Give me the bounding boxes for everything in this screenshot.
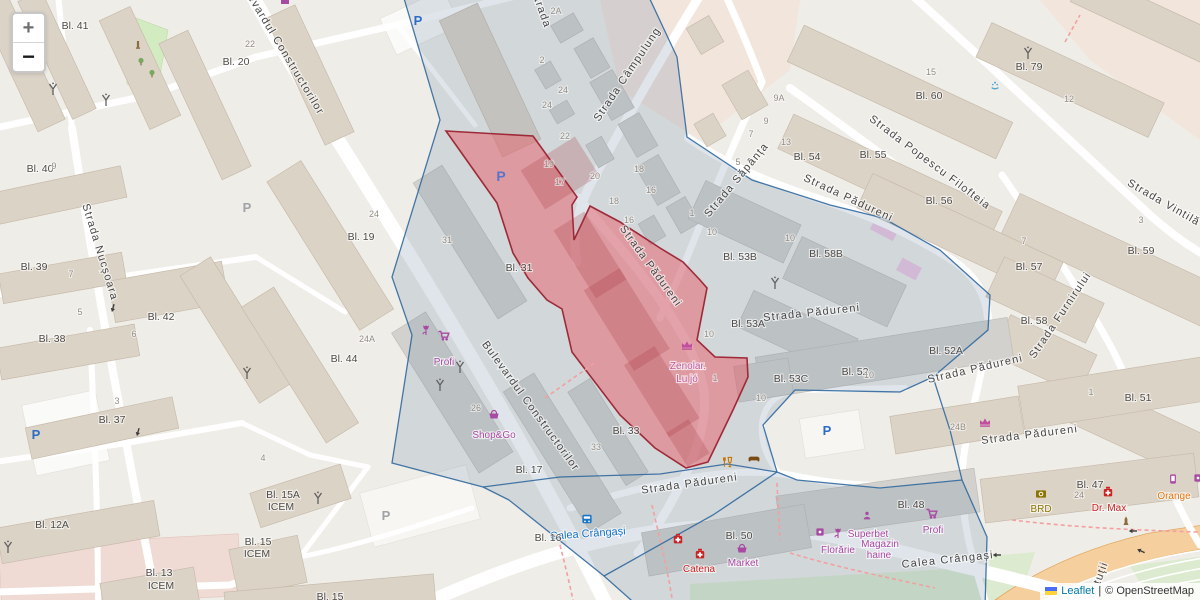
block-label: Bl. 15 [317, 591, 344, 600]
housenumber: 5 [77, 307, 82, 317]
block-label: Bl. 38 [39, 333, 66, 345]
housenumber: 24 [558, 85, 568, 95]
block-label: Bl. 16 [535, 532, 562, 544]
housenumber: 16 [624, 215, 634, 225]
housenumber: 2 [539, 55, 544, 65]
ukraine-flag-icon [1045, 587, 1057, 595]
housenumber: 10 [756, 393, 766, 403]
block-label: Bl. 42 [148, 311, 175, 323]
block-label: Bl. 58B [809, 248, 843, 260]
poi-label-brd: BRD [1030, 504, 1051, 515]
block-label: Bl. 56 [926, 195, 953, 207]
block-label: Bl. 52A [929, 345, 963, 357]
housenumber: 31 [442, 235, 452, 245]
housenumber: 17 [555, 177, 565, 187]
block-label: Bl. 33 [613, 425, 640, 437]
housenumber: 1 [689, 208, 694, 218]
parking-icon: P [243, 200, 252, 215]
poi-label-profi: Profi [923, 525, 944, 536]
parking-icon: P [823, 423, 832, 438]
housenumber: 4 [260, 453, 265, 463]
housenumber: 9A [773, 93, 784, 103]
parking-icon: P [32, 427, 41, 442]
poi-label-catena: Catena [683, 564, 716, 575]
housenumber: 10 [785, 233, 795, 243]
housenumber: 7 [68, 269, 73, 279]
block-label: Bl. 58 [1021, 315, 1048, 327]
block-label: Bl. 79 [1016, 61, 1043, 73]
poi-label-market: Market [728, 558, 759, 569]
block-label: Bl. 57 [1016, 261, 1043, 273]
attribution-separator: | [1098, 585, 1101, 597]
map-container: P P P P P P Bulevardul Constructorilor B… [0, 0, 1200, 600]
housenumber: 3 [1138, 215, 1143, 225]
block-label: Bl. 39 [21, 261, 48, 273]
housenumber: 15 [926, 67, 936, 77]
poi-label-shopgo: Shop&Go [472, 430, 516, 441]
housenumber: 5 [735, 157, 740, 167]
housenumber: 18 [609, 196, 619, 206]
poi-label-zenolar: Lu jó [676, 374, 698, 385]
housenumber: 9 [51, 161, 56, 171]
osm-copyright-link[interactable]: © OpenStreetMap [1105, 585, 1194, 597]
block-label: Bl. 48 [898, 499, 925, 511]
poi-label-haine: haine [867, 550, 892, 561]
housenumber: 9 [763, 116, 768, 126]
block-label: Bl. 50 [726, 530, 753, 542]
block-label: Bl. 37 [99, 414, 126, 426]
block-label: Bl. 44 [331, 353, 358, 365]
housenumber: 3 [114, 396, 119, 406]
block-label: Bl. 31 [506, 262, 533, 274]
shop-icon [1194, 474, 1200, 481]
block-label: Bl. 15 [245, 536, 272, 548]
housenumber: 33 [591, 442, 601, 452]
block-label: Bl. 40 [27, 163, 54, 175]
housenumber: 13 [781, 137, 791, 147]
housenumber: 16 [646, 185, 656, 195]
block-label: Bl. 17 [516, 464, 543, 476]
housenumber: 1 [712, 373, 717, 383]
housenumber: 7 [748, 129, 753, 139]
housenumber: 24 [542, 100, 552, 110]
housenumber: 26 [471, 403, 481, 413]
parking-icon: P [414, 13, 423, 28]
housenumber: 1 [1088, 387, 1093, 397]
housenumber: 22 [560, 131, 570, 141]
block-label: Bl. 55 [860, 149, 887, 161]
block-label: Bl. 13 [146, 567, 173, 579]
housenumber: 20 [590, 171, 600, 181]
shop-icon [281, 0, 289, 4]
block-label: Bl. 20 [223, 56, 250, 68]
housenumber: 10 [707, 227, 717, 237]
housenumber: 18 [634, 164, 644, 174]
block-label: Bl. 51 [1125, 392, 1152, 404]
poi-label-orange: Orange [1157, 491, 1191, 502]
housenumber: 7 [1021, 236, 1026, 246]
housenumber: 2A [550, 6, 561, 16]
block-label: Bl. 53C [774, 373, 809, 385]
poi-label-drmax: Dr. Max [1092, 503, 1126, 514]
block-label: Bl. 19 [348, 231, 375, 243]
housenumber: 24 [1074, 490, 1084, 500]
parking-icon: P [382, 508, 391, 523]
block-label: Bl. 60 [916, 90, 943, 102]
block-label: Bl. 59 [1128, 245, 1155, 257]
bank-icon [1036, 490, 1046, 497]
attribution-bar: Leaflet | © OpenStreetMap [1040, 583, 1200, 600]
housenumber: 10 [704, 329, 714, 339]
poi-label-zenolar: Zenolar. [670, 361, 706, 372]
shop-icon [816, 528, 823, 535]
housenumber: 10 [864, 370, 874, 380]
mobile-phone-shop-icon [1170, 474, 1176, 483]
bus-stop-icon [582, 515, 591, 523]
block-label: ICEM [268, 501, 294, 513]
housenumber: 24 [369, 209, 379, 219]
housenumber: 12 [1064, 94, 1074, 104]
block-label: Bl. 54 [794, 151, 821, 163]
housenumber: 24B [950, 422, 966, 432]
poi-label-magazin: Magazin [861, 539, 899, 550]
block-label: ICEM [244, 548, 270, 560]
map-canvas[interactable]: P P P P P P Bulevardul Constructorilor B… [0, 0, 1200, 600]
parking-icon: P [496, 168, 505, 184]
poi-label-florarie: Florărie [821, 545, 855, 556]
zoom-in-button[interactable]: + [13, 14, 44, 42]
housenumber: 19 [544, 159, 554, 169]
zoom-out-button[interactable]: − [13, 42, 44, 71]
block-label: Bl. 15A [266, 489, 300, 501]
poi-label-profi: Profi [434, 357, 455, 368]
housenumber: 6 [131, 329, 136, 339]
block-label: Bl. 53B [723, 251, 757, 263]
zoom-control: + − [11, 12, 46, 73]
block-label: ICEM [148, 580, 174, 592]
leaflet-link[interactable]: Leaflet [1061, 585, 1094, 597]
housenumber: 22 [245, 39, 255, 49]
block-label: Bl. 53A [731, 318, 765, 330]
block-label: Bl. 12A [35, 519, 69, 531]
block-label: Bl. 41 [62, 20, 89, 32]
housenumber: 24A [359, 334, 375, 344]
